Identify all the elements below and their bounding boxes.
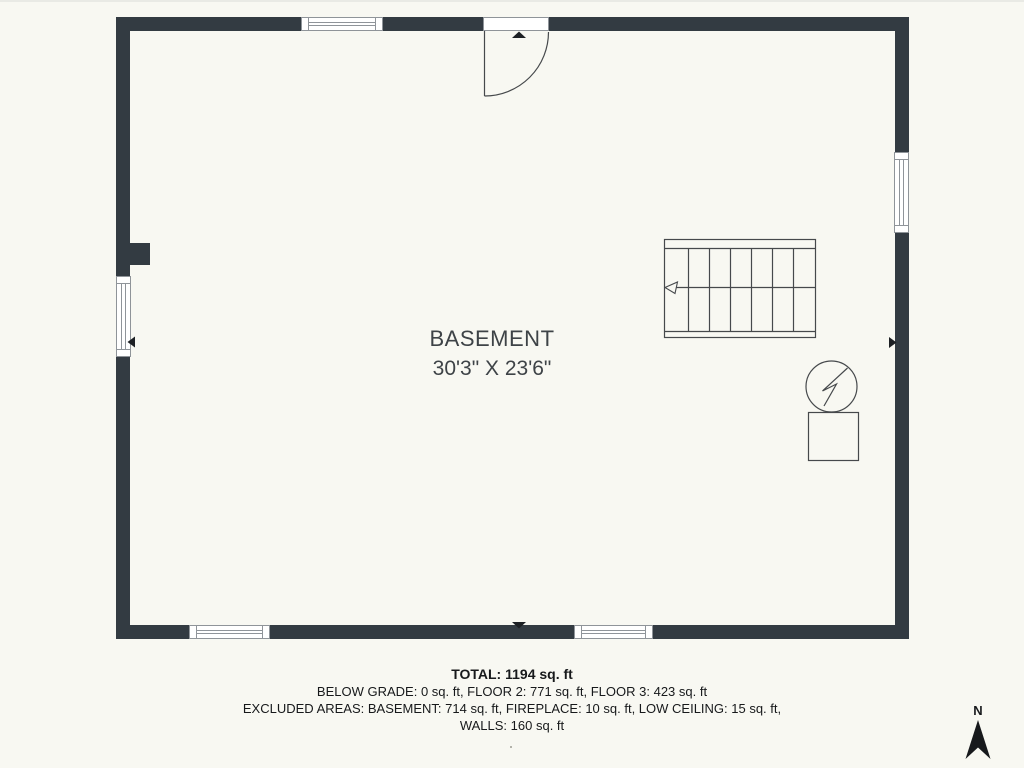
utility-box [809, 413, 859, 461]
floorplan-canvas: BASEMENT 30'3" X 23'6" TOTAL: 1194 sq. f… [0, 0, 1024, 768]
marker-top-icon [512, 32, 526, 39]
lightning-bolt-icon [823, 368, 848, 406]
room-dimensions: 30'3" X 23'6" [429, 357, 554, 381]
door-opening [484, 18, 549, 31]
door-swing-arc [485, 32, 549, 96]
window-bottom-left [190, 626, 270, 639]
north-label: N [973, 703, 982, 718]
window-left [117, 277, 131, 357]
wall-right [895, 17, 909, 639]
stairs-direction-arrow-icon [665, 282, 678, 294]
window-bottom-right [575, 626, 653, 639]
room-label: BASEMENT 30'3" X 23'6" [429, 326, 554, 381]
stair-treads [689, 249, 794, 332]
summary-excluded-areas: EXCLUDED AREAS: BASEMENT: 714 sq. ft, FI… [243, 700, 781, 717]
entry-door [484, 18, 549, 97]
summary-below-grade: BELOW GRADE: 0 sq. ft, FLOOR 2: 771 sq. … [243, 683, 781, 700]
summary-walls: WALLS: 160 sq. ft [243, 717, 781, 734]
window-top [302, 18, 383, 31]
window-right [895, 153, 909, 233]
stairs-outline [665, 240, 816, 338]
area-summary: TOTAL: 1194 sq. ft BELOW GRADE: 0 sq. ft… [243, 666, 781, 734]
room-name: BASEMENT [429, 326, 554, 352]
stray-mark [510, 746, 512, 748]
summary-total: TOTAL: 1194 sq. ft [243, 666, 781, 683]
floorplan-drawing [0, 0, 1024, 768]
wall-protrusion [116, 243, 150, 265]
staircase [665, 240, 816, 338]
utility-symbols [806, 361, 859, 461]
north-arrow-icon [966, 720, 991, 759]
